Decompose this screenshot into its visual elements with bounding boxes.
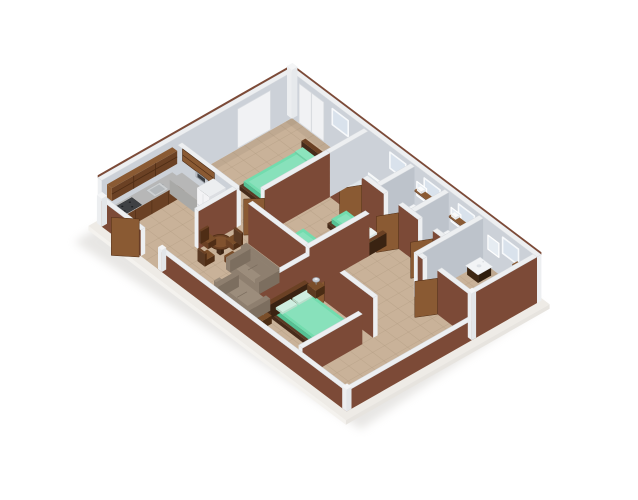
front-door-open — [111, 217, 139, 257]
door-leaf — [415, 278, 438, 317]
floor-plan-3d-render — [0, 0, 638, 500]
floor-plan-figure: 3D isometric floor plan render of an apa… — [0, 0, 638, 500]
